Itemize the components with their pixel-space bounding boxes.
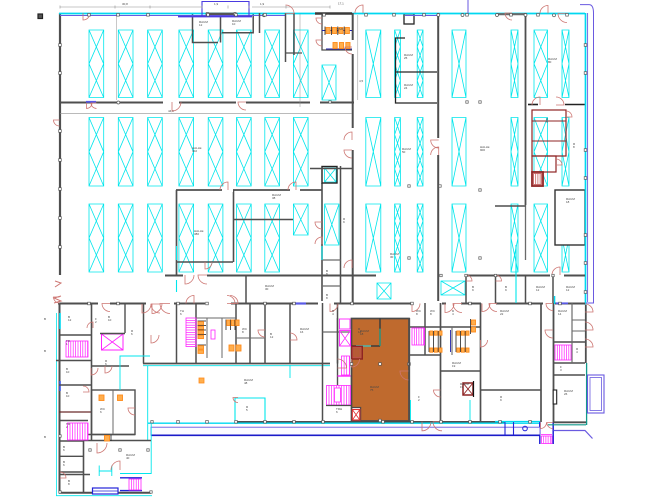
svg-text:B: B xyxy=(44,435,46,439)
svg-text:B: B xyxy=(44,349,46,353)
svg-text:30,8: 30,8 xyxy=(122,2,128,6)
svg-text:17,1: 17,1 xyxy=(338,2,344,6)
svg-text:1,9: 1,9 xyxy=(214,2,219,6)
svg-text:4,5: 4,5 xyxy=(359,79,364,83)
svg-text:1,9: 1,9 xyxy=(260,2,265,6)
svg-text:B: B xyxy=(44,317,46,321)
